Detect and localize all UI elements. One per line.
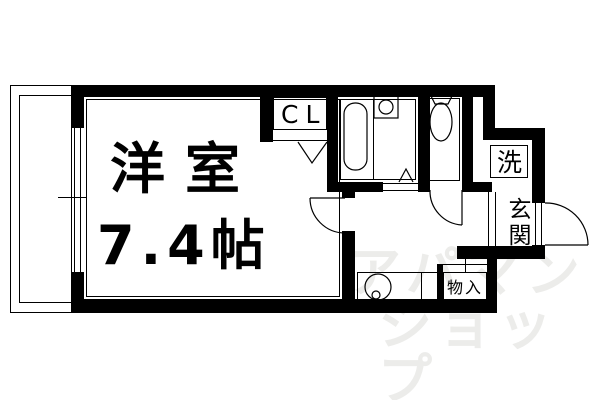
entry-door-arc [545,203,588,245]
toilet-door-arc [430,190,462,225]
watermark-line-2: ショップ [378,299,600,400]
bathtub [344,103,367,170]
toilet-bowl [430,103,452,141]
watermark-line-1: アパマン [347,246,586,300]
closet-door-mark [298,142,327,163]
room-door-arc [310,198,345,233]
bath-sink-bowl [379,100,393,114]
floorplan-canvas: 洋室 7.4帖 CL 洗 玄関 物入 アパマン ショップ [0,0,600,400]
bath-sink-counter [374,96,398,118]
bath-door-mark [399,169,413,182]
